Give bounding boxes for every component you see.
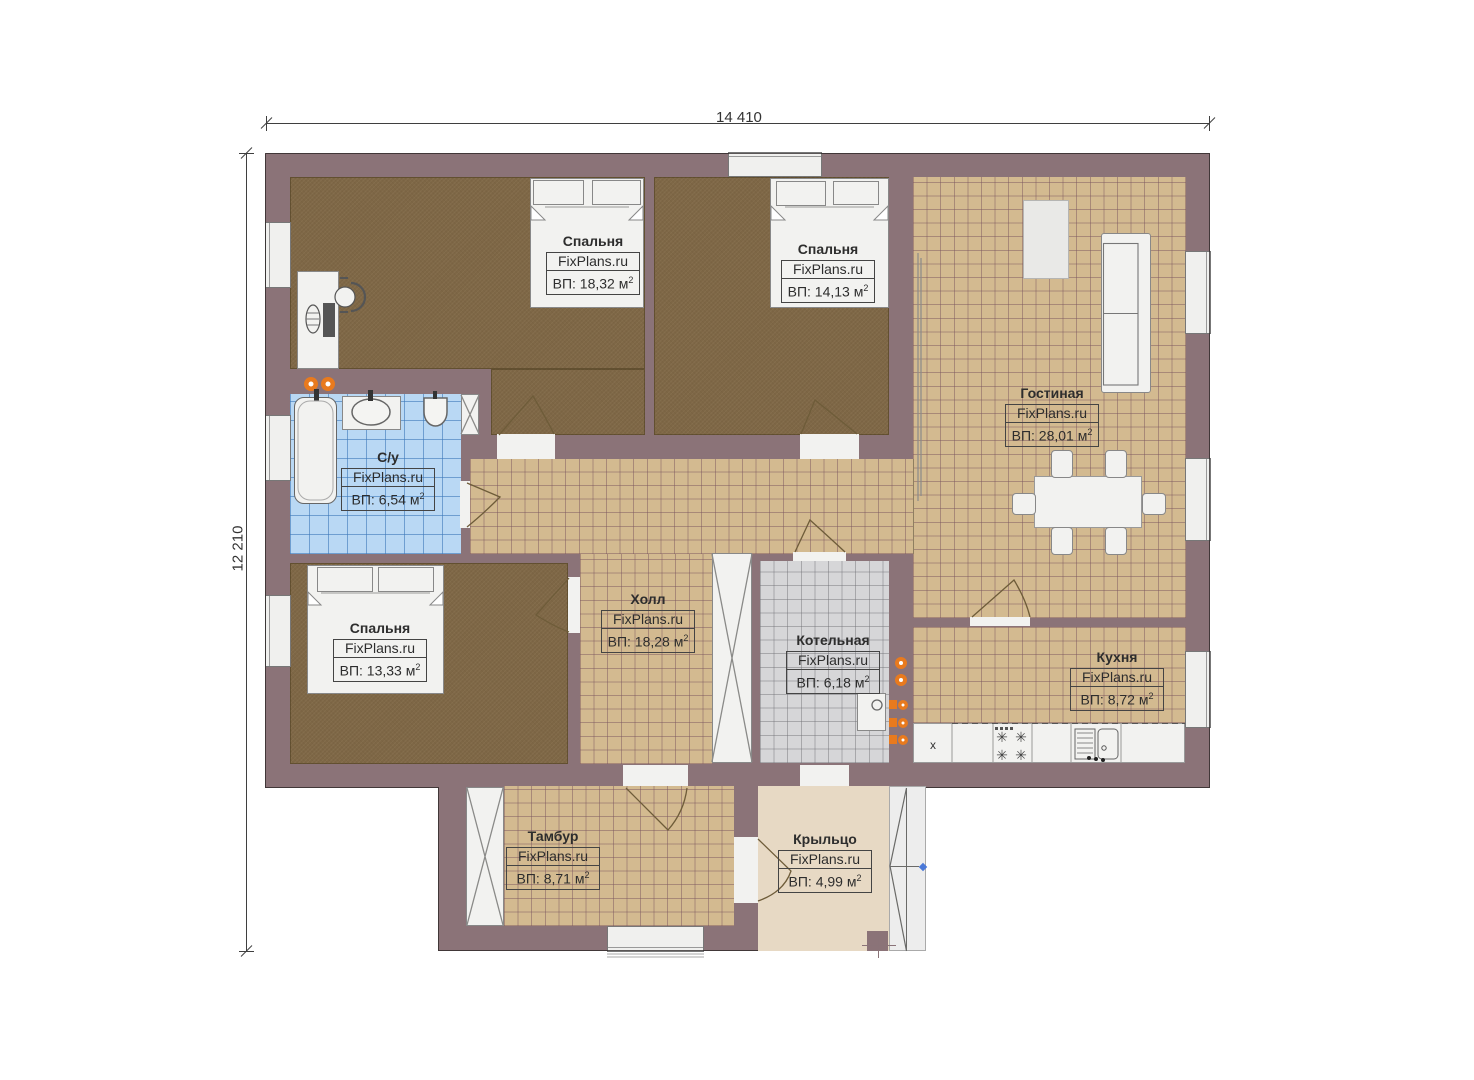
svg-text:✳: ✳ [996,729,1008,745]
svg-text:✳: ✳ [996,747,1008,763]
svg-text:✳: ✳ [1015,729,1027,745]
svg-text:x: x [930,738,936,752]
svg-text:✳: ✳ [1015,747,1027,763]
